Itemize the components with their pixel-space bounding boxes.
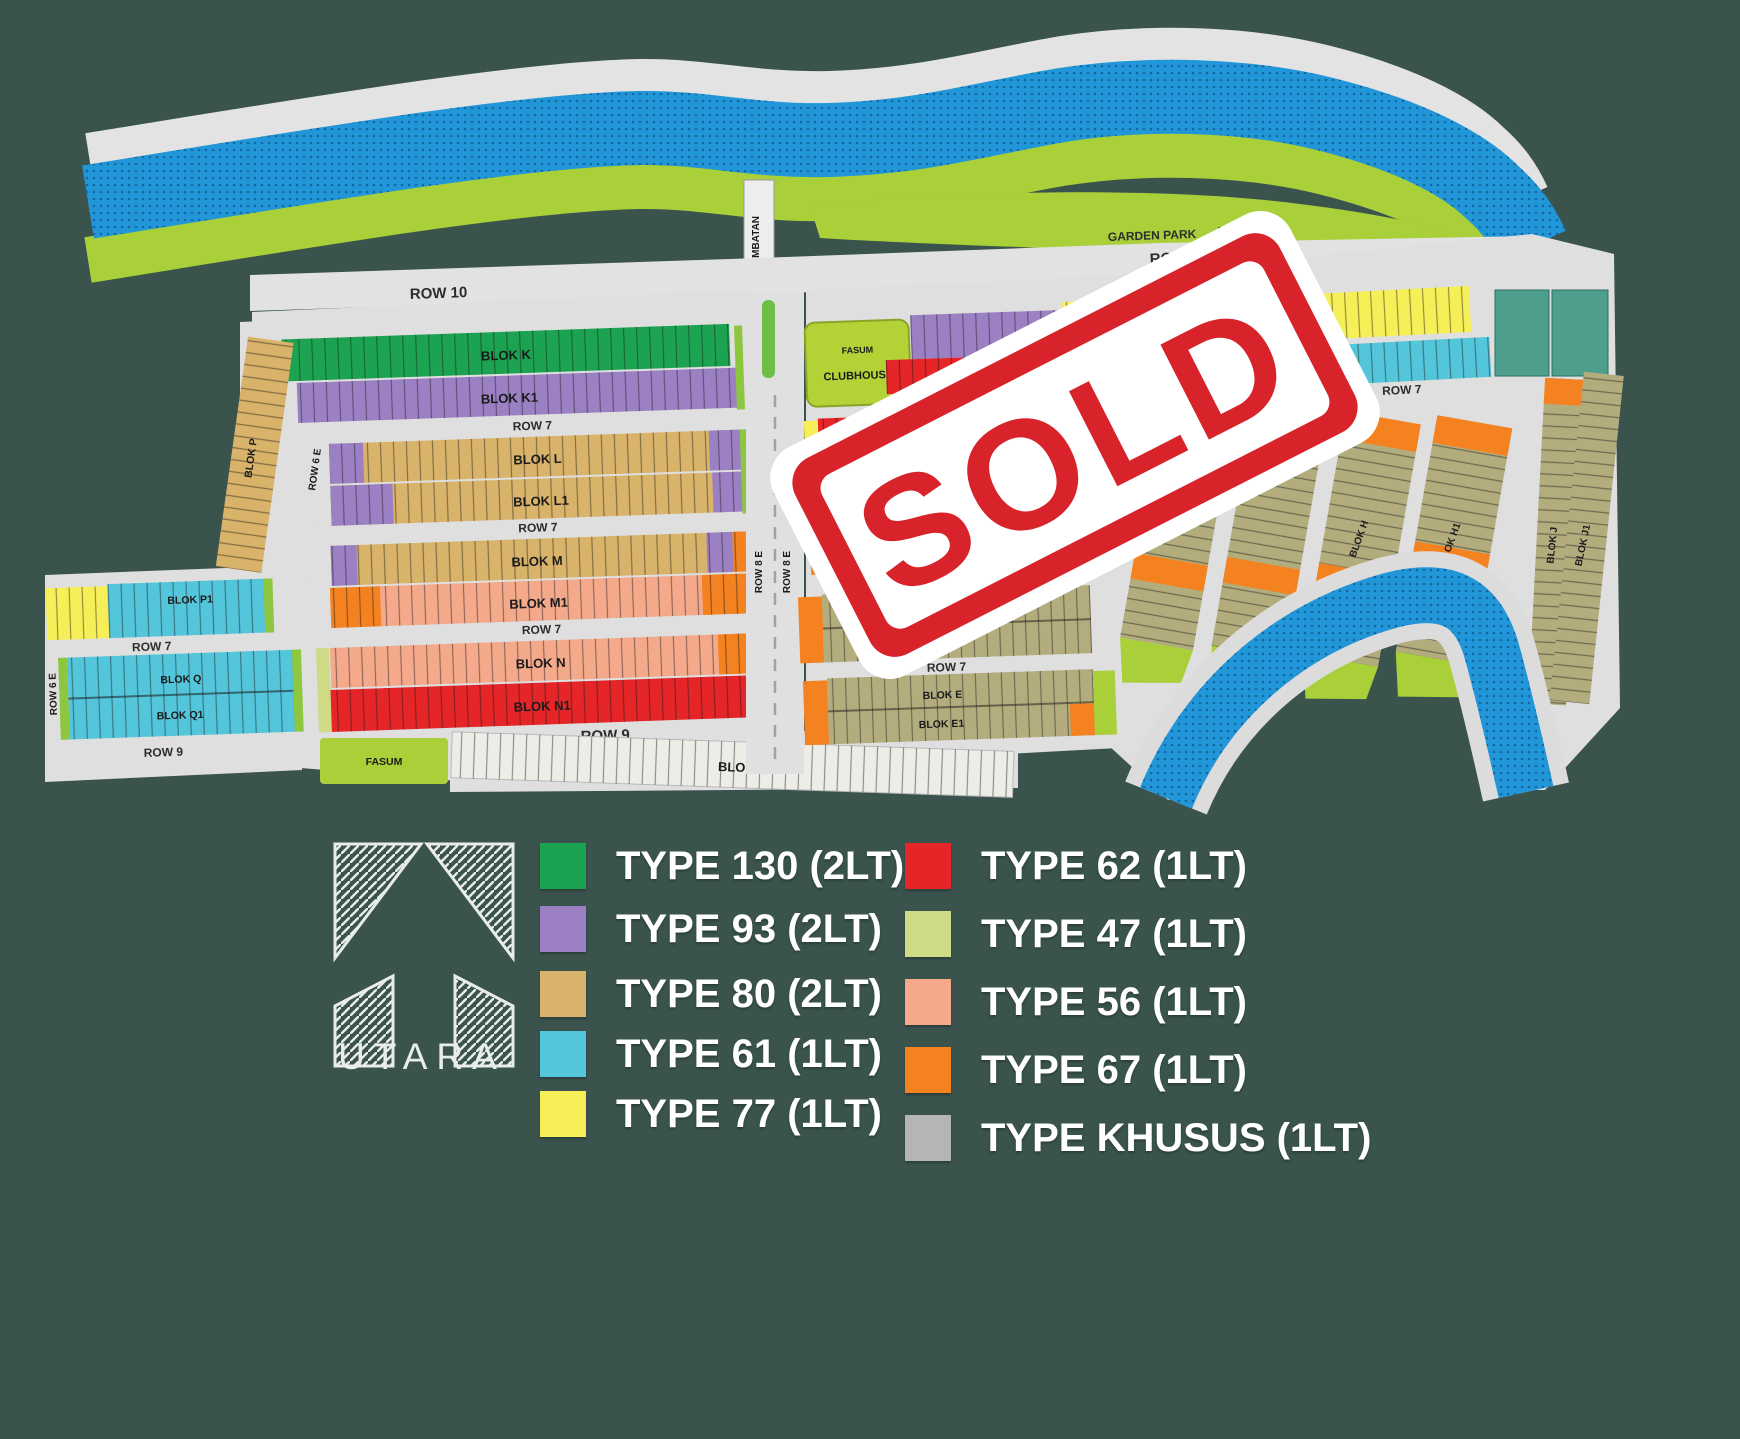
legend-item: TYPE 61 (1LT) <box>540 1031 882 1077</box>
arrow-head-left <box>335 844 421 958</box>
row7-left-lower-label: ROW 7 <box>132 639 172 654</box>
blok-e1-label: BLOK E1 <box>919 718 965 732</box>
blok-k1-label: BLOK K1 <box>481 390 539 407</box>
blok-n1-label: BLOK N1 <box>513 698 571 715</box>
fasum-south-label: FASUM <box>366 756 403 768</box>
legend-label-typekhusus: TYPE KHUSUS (1LT) <box>981 1116 1371 1161</box>
blok-e-label: BLOK E <box>922 689 962 702</box>
row8e-a-label: ROW 8 E <box>754 551 765 594</box>
blok-n-label: BLOK N <box>516 655 566 672</box>
legend-label-type56: TYPE 56 (1LT) <box>981 980 1247 1025</box>
blok-m1-label: BLOK M1 <box>509 595 568 612</box>
legend-label-type62: TYPE 62 (1LT) <box>981 844 1247 889</box>
blok-l-label: BLOK L <box>513 451 562 468</box>
legend-item: TYPE 67 (1LT) <box>905 1047 1247 1093</box>
row7-right-mid-label: ROW 7 <box>927 660 967 675</box>
legend-label-type77: TYPE 77 (1LT) <box>616 1092 882 1137</box>
legend-swatch-type47 <box>905 911 951 957</box>
teal-lot-1 <box>1495 290 1549 376</box>
blok-l1-label: BLOK L1 <box>513 493 569 510</box>
road-median <box>762 300 775 378</box>
siteplan-map: GARDEN PARK FASUM JEMBATAN ROW 10 ROW 10… <box>0 0 1740 830</box>
blok-e-pair: BLOK E BLOK E1 <box>803 668 1117 745</box>
arrow-head-right <box>427 844 513 958</box>
blok-p1: BLOK P1 <box>46 578 275 640</box>
legend-label-type67: TYPE 67 (1LT) <box>981 1048 1247 1093</box>
legend-item: TYPE 47 (1LT) <box>905 911 1247 957</box>
legend-swatch-type61 <box>540 1031 586 1077</box>
legend-item: TYPE 80 (2LT) <box>540 971 882 1017</box>
row7-far-right-label: ROW 7 <box>1382 382 1422 398</box>
legend-swatch-type67 <box>905 1047 951 1093</box>
siteplan-page: { "map": { "sold_stamp": "SOLD", "landma… <box>0 0 1740 1439</box>
legend-swatch-typekhusus <box>905 1115 951 1161</box>
blok-m-label: BLOK M <box>511 553 563 570</box>
legend-swatch-type77 <box>540 1091 586 1137</box>
north-arrow-label: UTARA <box>326 1036 518 1078</box>
fasum-south: FASUM <box>320 738 448 784</box>
legend-swatch-type93 <box>540 906 586 952</box>
legend-swatch-type80 <box>540 971 586 1017</box>
legend-label-type130: TYPE 130 (2LT) <box>616 844 904 889</box>
row7-c-label: ROW 7 <box>522 622 562 637</box>
legend-item: TYPE 77 (1LT) <box>540 1091 882 1137</box>
legend-label-type61: TYPE 61 (1LT) <box>616 1032 882 1077</box>
legend-label-type80: TYPE 80 (2LT) <box>616 972 882 1017</box>
blok-k-label: BLOK K <box>481 347 532 364</box>
row9-left-label: ROW 9 <box>143 745 183 760</box>
clubhouse-fasum-label: FASUM <box>841 345 873 356</box>
legend-item: TYPE 62 (1LT) <box>905 843 1247 889</box>
clubhouse-label: CLUBHOUSE <box>823 369 893 383</box>
north-arrow-icon <box>332 836 516 1070</box>
legend-swatch-type130 <box>540 843 586 889</box>
legend-item: TYPE KHUSUS (1LT) <box>905 1115 1371 1161</box>
row7-a-label: ROW 7 <box>512 418 552 433</box>
legend-item: TYPE 93 (2LT) <box>540 906 882 952</box>
blok-q-label: BLOK Q <box>160 673 201 686</box>
legend-item: TYPE 56 (1LT) <box>905 979 1247 1025</box>
row7-b-label: ROW 7 <box>518 520 558 535</box>
legend-label-type47: TYPE 47 (1LT) <box>981 912 1247 957</box>
blok-q1-label: BLOK Q1 <box>157 709 204 723</box>
blok-p1-label: BLOK P1 <box>167 593 213 607</box>
row8e-b-label: ROW 8 E <box>782 551 793 594</box>
teal-lot-2 <box>1552 290 1608 376</box>
row6e-b-label: ROW 6 E <box>48 672 60 715</box>
legend-swatch-type62 <box>905 843 951 889</box>
row10-left-label: ROW 10 <box>410 284 468 303</box>
blok-q-q1: BLOK Q BLOK Q1 <box>58 649 304 739</box>
legend-swatch-type56 <box>905 979 951 1025</box>
legend-label-type93: TYPE 93 (2LT) <box>616 907 882 952</box>
legend-item: TYPE 130 (2LT) <box>540 843 904 889</box>
